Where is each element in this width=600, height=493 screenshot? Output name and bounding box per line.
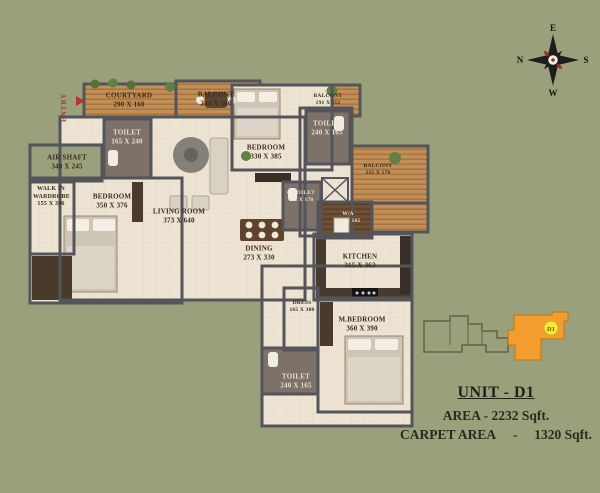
room-label-walk-in-wardrobe: WALK IN WARDROBE155 X 306 [33, 186, 69, 209]
carpet-area-value: 1320 Sqft. [534, 427, 592, 443]
entry-arrow-icon [76, 96, 85, 106]
carpet-area-dash: - [513, 427, 518, 443]
room-label-dining: DINING273 X 330 [243, 244, 274, 262]
carpet-area-line: CARPET AREA - 1320 Sqft. [398, 427, 594, 443]
room-label-c-toilet: C.TOILET113 X 178 [287, 190, 315, 204]
floorplan-canvas: E S W N D1 COURTYARD290 X 160 BALCONY244… [0, 0, 600, 493]
room-label-living-room: LIVING ROOM373 X 640 [153, 207, 205, 225]
keyplan-building-outline [424, 316, 508, 352]
unit-title: UNIT - D1 [398, 384, 594, 402]
room-label-bedroom-1: BEDROOM350 X 376 [93, 192, 131, 210]
keyplan-unit-d1-shape [508, 312, 568, 360]
carpet-area-label: CARPET AREA [400, 427, 496, 443]
room-label-air-shaft: AIR SHAFT340 X 245 [47, 153, 87, 171]
room-label-m-bedroom: M.BEDROOM360 X 390 [338, 315, 385, 333]
unit-info-block: UNIT - D1 AREA - 2232 Sqft. CARPET AREA … [398, 384, 594, 443]
room-label-dress: DRESS165 X 300 [289, 300, 314, 314]
room-label-bedroom-2: BEDROOM330 X 385 [247, 143, 285, 161]
room-label-toilet-3: TOILET240 X 165 [280, 372, 311, 390]
room-label-balcony-1: BALCONY244 X 160 [198, 90, 234, 108]
room-label-courtyard: COURTYARD290 X 160 [106, 91, 152, 109]
keyplan: D1 [424, 312, 568, 360]
room-label-toilet-2: TOILET240 X 165 [311, 119, 342, 137]
compass-icon: E S W N [517, 23, 589, 98]
compass-letter-west: W [549, 88, 558, 98]
compass-letter-south: S [583, 55, 588, 65]
keyplan-unit-badge-label: D1 [547, 326, 555, 333]
compass-letter-east: E [550, 23, 556, 33]
room-label-balcony-2: BALCONY191 X 112 [314, 93, 343, 107]
entry-label: ENTRY [60, 90, 72, 124]
room-label-kitchen: KITCHEN315 X 362 [343, 252, 377, 270]
area-line: AREA - 2232 Sqft. [398, 408, 594, 424]
room-label-balcony-3: BALCONY225 X 170 [364, 163, 393, 177]
room-label-toilet-1: TOILET165 X 240 [111, 128, 142, 146]
compass-letter-north: N [517, 55, 524, 65]
room-label-wa: W/A238 X 165 [335, 211, 360, 225]
